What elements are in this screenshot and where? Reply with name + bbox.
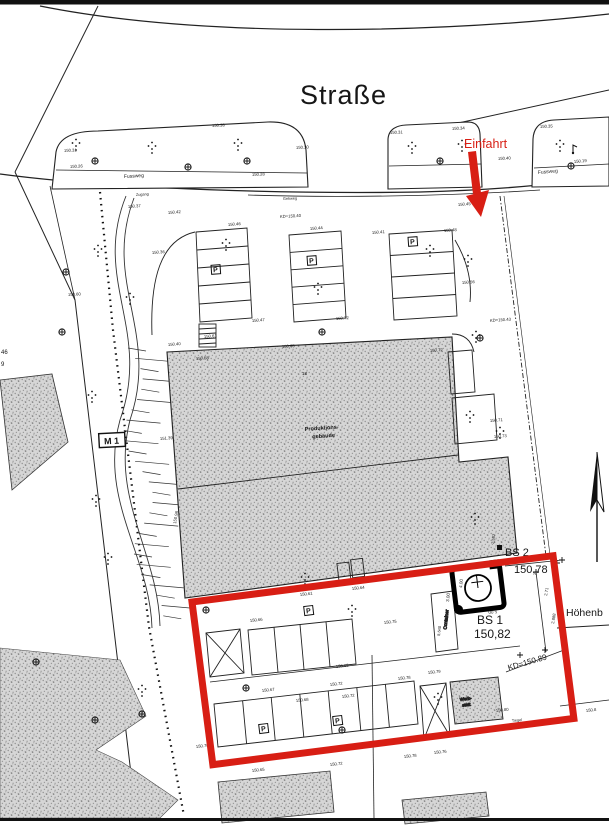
utility-well-symbol — [477, 335, 483, 341]
micro-elevation-label: 150.76 — [434, 749, 448, 755]
utility-well-symbol — [92, 717, 98, 723]
hachure-line — [129, 451, 147, 454]
micro-elevation-label: 150.8 — [586, 707, 598, 713]
micro-elevation-label: KD=150.43 — [490, 316, 512, 323]
micro-elevation-label: 150.72 — [430, 347, 444, 353]
micro-elevation-label: 150.72 — [330, 681, 344, 687]
transformer-box-1-cross — [206, 629, 244, 677]
main-building: Produktions- gebäude 18 — [167, 337, 517, 598]
parking-row-1 — [196, 228, 252, 322]
north-arrow — [590, 452, 604, 562]
site-plan-drawing: Straße M 1 46 9 Produktions- — [0, 0, 609, 839]
svg-text:P: P — [306, 608, 312, 616]
utility-well-symbol — [203, 607, 209, 613]
micro-elevation-label: 150.65 — [282, 343, 296, 349]
neighbour-building-south-1 — [218, 771, 334, 823]
micro-elevation-label: 2.71 — [543, 587, 549, 597]
micro-elevation-label: 150.44 — [310, 225, 324, 231]
micro-elevation-label: 150.46 — [228, 221, 242, 227]
east-line-low — [560, 700, 609, 706]
height-ref-label: Höhenb — [566, 607, 603, 619]
neighbour-parcel-southwest — [0, 648, 178, 818]
site-plan-page: Straße M 1 46 9 Produktions- — [0, 0, 609, 839]
dimension-tick — [559, 557, 565, 563]
hachure-line — [157, 595, 175, 598]
south-parcel-line — [372, 655, 374, 818]
neighbour-building-west — [0, 374, 68, 490]
kerb-line-2 — [248, 190, 540, 196]
micro-elevation-label: 150.72 — [330, 761, 344, 767]
micro-elevation-label: 4.00 — [458, 578, 464, 588]
micro-elevation-label: 150.58 — [196, 355, 210, 361]
hachure-line — [137, 564, 171, 567]
hachure-line — [132, 410, 150, 413]
micro-elevation-label: 150.73 — [494, 433, 508, 439]
micro-elevation-label: 150.56 — [462, 279, 476, 285]
micro-elevation-label: 151.39 — [160, 435, 174, 441]
micro-elevation-label: 150.35 — [540, 123, 554, 129]
micro-elevation-label: 2.888 — [550, 612, 557, 624]
hachure-line — [137, 400, 171, 403]
kd-label: KD=150.89 — [507, 652, 549, 672]
tree-symbol — [314, 283, 323, 295]
utility-well-symbol — [139, 711, 145, 717]
map-top-border — [0, 0, 609, 5]
drive-curve-right — [455, 240, 470, 302]
parking-p-symbol: P — [307, 256, 317, 266]
bs2-benchmark-symbol — [497, 545, 502, 550]
footway-island-left — [52, 122, 308, 189]
micro-elevation-label: 150.78 — [398, 675, 412, 681]
tree-symbol — [94, 245, 103, 257]
micro-elevation-label: 150.42 — [168, 209, 182, 215]
map-bottom-border — [0, 818, 609, 821]
hachure-line — [140, 369, 158, 372]
micro-elevation-label: 150.61 — [300, 591, 314, 597]
micro-elevation-label: 150.38 — [212, 122, 226, 128]
hachure-line — [141, 389, 159, 392]
micro-elevation-label: 150.31 — [390, 129, 404, 135]
hachure-line — [143, 472, 161, 475]
micro-elevation-label: 150.98 — [172, 510, 179, 524]
micro-elevation-label: 3.00 — [445, 592, 451, 602]
transformer-box-2-cross — [420, 683, 450, 739]
micro-elevation-label: 150.47 — [252, 317, 266, 323]
micro-elevation-label: 150.72 — [336, 315, 350, 321]
svg-text:P: P — [309, 258, 314, 265]
bs2-height-label: 150,78 — [514, 564, 548, 576]
micro-elevation-label: 150.65 — [336, 663, 350, 669]
yard-row-a-stalls — [274, 622, 330, 673]
hachure-line — [128, 348, 146, 351]
north-arrow-left-feather — [590, 452, 597, 512]
parking-p-symbol: P — [333, 716, 343, 726]
micro-elevation-label: 150.28 — [252, 171, 266, 177]
utility-well-symbol — [339, 727, 345, 733]
micro-elevation-label: 150.40 — [168, 341, 182, 347]
drive-curve-left — [152, 232, 195, 335]
micro-elevation-label: 150.65 — [252, 767, 266, 773]
yard-lane-line — [210, 646, 520, 682]
micro-elevation-label: 150.37 — [128, 203, 142, 209]
micro-elevation-label: 150.75 — [384, 619, 398, 625]
micro-elevation-label: 150.30 — [296, 144, 310, 150]
micro-elevation-label: 150.68 — [296, 697, 310, 703]
bs1-height-label: 150,82 — [474, 627, 511, 641]
micro-elevation-label: 150.66 — [250, 617, 264, 623]
micro-elevation-label: 150.48 — [444, 227, 458, 233]
micro-elevation-label: 150.61 — [204, 333, 218, 339]
parking-row-1-stalls — [197, 246, 251, 304]
hachure-line — [163, 616, 181, 619]
hachure-line — [152, 492, 170, 495]
edge-number-fragment-bottom: 9 — [1, 362, 5, 368]
svg-text:P: P — [410, 239, 415, 246]
micro-elevation-label: 150.67 — [262, 687, 276, 693]
micro-elevation-label: KD=150.40 — [280, 213, 302, 219]
svg-text:P: P — [335, 718, 341, 726]
tree-symbol — [138, 685, 147, 697]
tree-symbol — [466, 411, 475, 423]
utility-well-symbol — [244, 158, 250, 164]
parking-row-3-stalls — [390, 252, 456, 299]
north-parking — [152, 228, 471, 347]
hachure-line — [142, 575, 160, 578]
m1-label: M 1 — [104, 436, 120, 447]
hachure-line — [126, 420, 160, 423]
micro-elevation-label: 8.640 — [436, 625, 442, 636]
micro-elevation-label: 150.64 — [352, 585, 366, 591]
tree-symbol — [348, 605, 357, 617]
micro-elevation-label: 150.40 — [498, 155, 512, 161]
utility-well-symbol — [33, 659, 39, 665]
micro-elevation-label: 150.79 — [428, 669, 442, 675]
entrance-label: Einfahrt — [464, 137, 508, 151]
micro-elevation-label: 150.71 — [490, 417, 504, 423]
utility-well-symbol — [185, 164, 191, 170]
tree-symbol — [426, 245, 435, 257]
parking-p-symbol: P — [259, 724, 269, 734]
micro-elevation-label: Zugang — [136, 192, 149, 197]
bed-corner-arc — [452, 334, 474, 352]
micro-elevation-label: 150.45 — [458, 201, 472, 207]
micro-elevation-label: 150.80 — [496, 707, 510, 713]
micro-elevation-label: 150.34 — [452, 125, 466, 131]
parking-row-2 — [289, 231, 346, 322]
micro-elevation-label: 150.36 — [152, 249, 166, 255]
micro-elevation-label: Gehweg — [283, 197, 297, 201]
hachure-line — [124, 430, 142, 433]
hachure-line — [139, 533, 157, 536]
dimension-tick — [517, 652, 523, 658]
parcel-boundary-spur — [50, 186, 75, 300]
micro-elevation-label: 5.00 — [488, 609, 498, 615]
hachure-line — [135, 461, 169, 464]
micro-elevation-label: Fussweg — [124, 173, 145, 180]
street-area: Straße — [0, 0, 609, 196]
utility-well-symbol — [59, 329, 65, 335]
production-building-footprint — [167, 337, 517, 598]
tree-symbol — [222, 239, 231, 251]
micro-elevation-label: 150.72 — [342, 693, 356, 699]
parking-row-2-stalls — [290, 248, 345, 304]
micro-elevation-label: 150.26 — [70, 163, 84, 169]
hachure-line — [149, 513, 167, 516]
tree-symbol — [88, 391, 97, 403]
container-label: Container — [442, 609, 449, 630]
micro-elevation-label: 150.31 — [64, 147, 78, 153]
utility-well-symbol — [319, 329, 325, 335]
north-arrow-right-feather — [597, 452, 604, 512]
utility-well-symbol — [92, 158, 98, 164]
utility-well-symbol — [437, 158, 443, 164]
micro-elevation-label: 150.60 — [68, 291, 82, 297]
utility-well-symbol — [243, 685, 249, 691]
micro-elevation-label: 150.78 — [404, 753, 418, 759]
micro-elevation-label: 150.41 — [372, 229, 386, 235]
werkstatt-building — [450, 677, 503, 724]
edge-number-fragment-top: 46 — [1, 350, 8, 356]
street-upper-edge — [40, 6, 609, 30]
svg-text:P: P — [261, 726, 267, 734]
parking-p-symbol: P — [304, 606, 314, 616]
hachure-line — [124, 441, 158, 444]
parking-p-symbol: P — [408, 237, 418, 247]
building-inner-mark: 18 — [302, 371, 308, 376]
street-name-label: Straße — [300, 80, 387, 110]
street-sign-base — [572, 152, 574, 154]
svg-text:P: P — [213, 267, 218, 274]
hachure-line — [135, 358, 169, 361]
yard-row-b-stalls — [243, 684, 390, 743]
utility-well-symbol — [63, 269, 69, 275]
